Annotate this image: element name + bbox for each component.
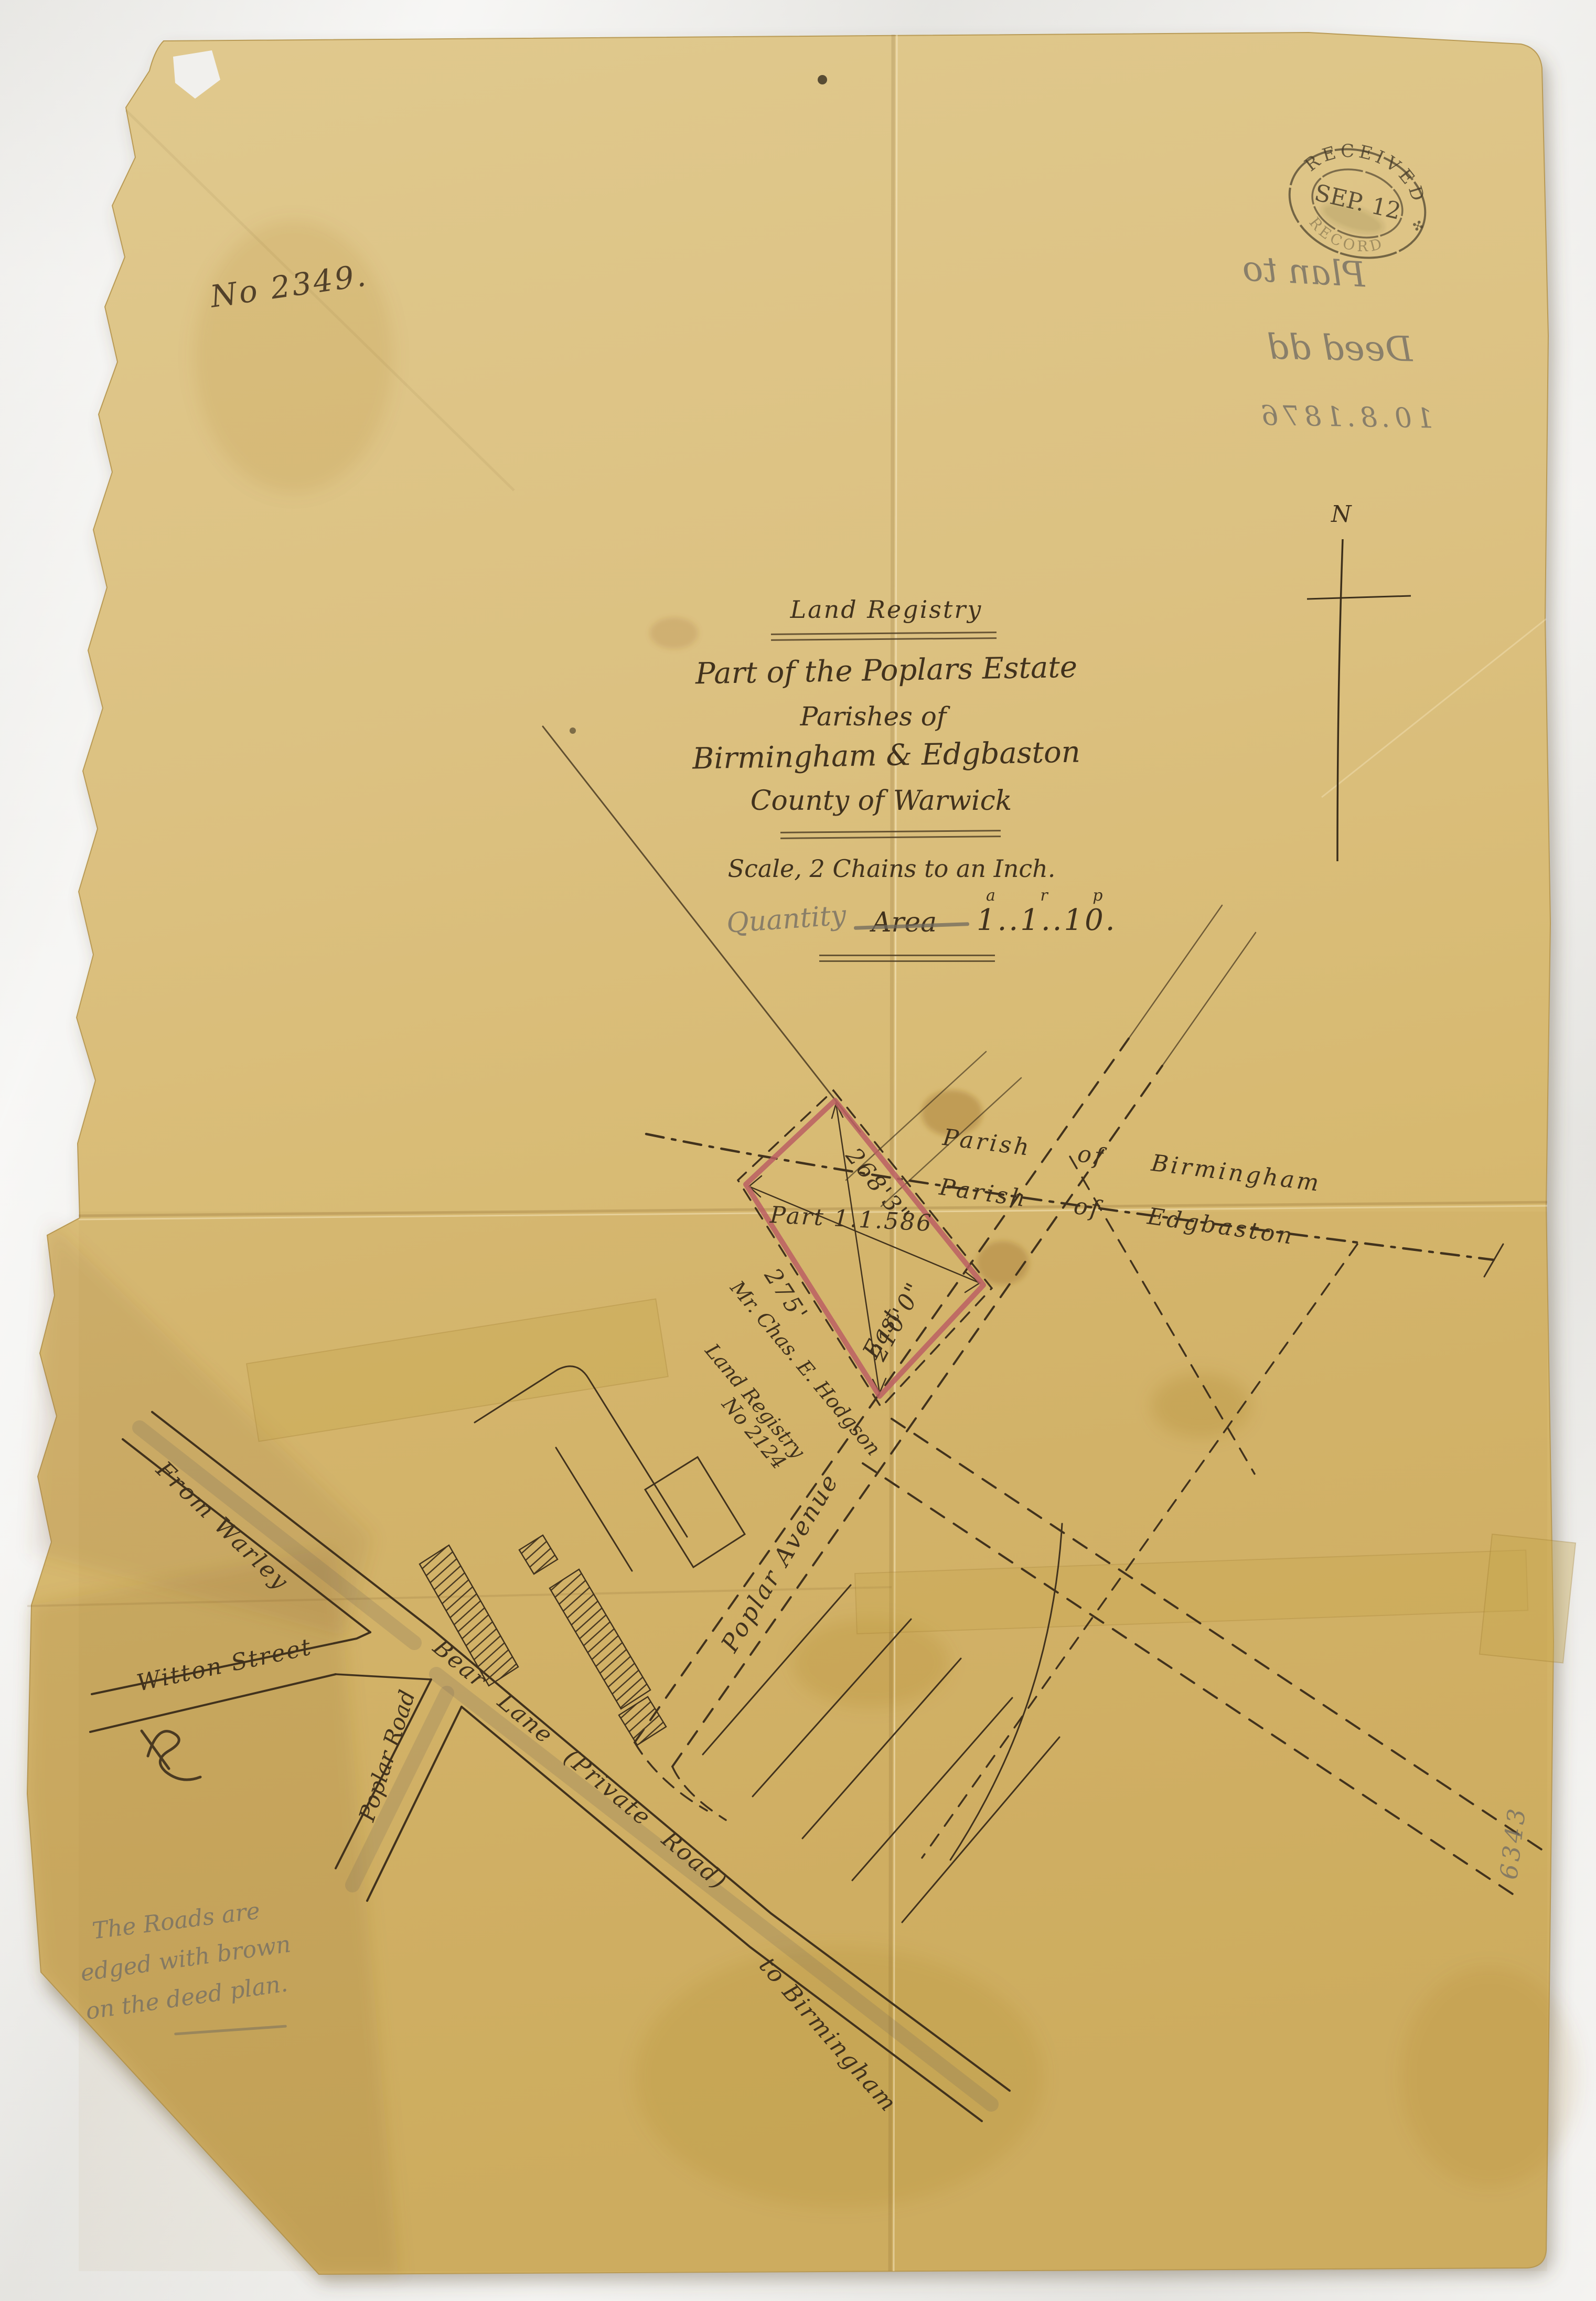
title-parishes-line: Parishes of [650, 703, 1096, 731]
title-scale-line: Scale, 2 Chains to an Inch. [629, 856, 1154, 881]
photo-backdrop: RECEIVED RECORD SEP. 12 ✣ No 2349. Plan … [0, 0, 1596, 2301]
title-rule-3 [819, 955, 995, 962]
pencil-annotation: Plan to Deed dd 10.8.1876 [1155, 245, 1437, 474]
pencil-annotation-line1: Plan to [1241, 250, 1366, 293]
pencil-annotation-line2: Deed dd [1266, 329, 1413, 368]
pencil-annotation-line3: 10.8.1876 [1257, 402, 1434, 433]
north-label: N [1331, 502, 1352, 527]
arp-superscript: a r p [986, 887, 1123, 904]
title-county-line: County of Warwick [650, 787, 1112, 816]
title-heading: Land Registry [650, 597, 1122, 622]
area-label: Area [872, 908, 937, 937]
area-value: 1..1..10. [977, 905, 1117, 936]
